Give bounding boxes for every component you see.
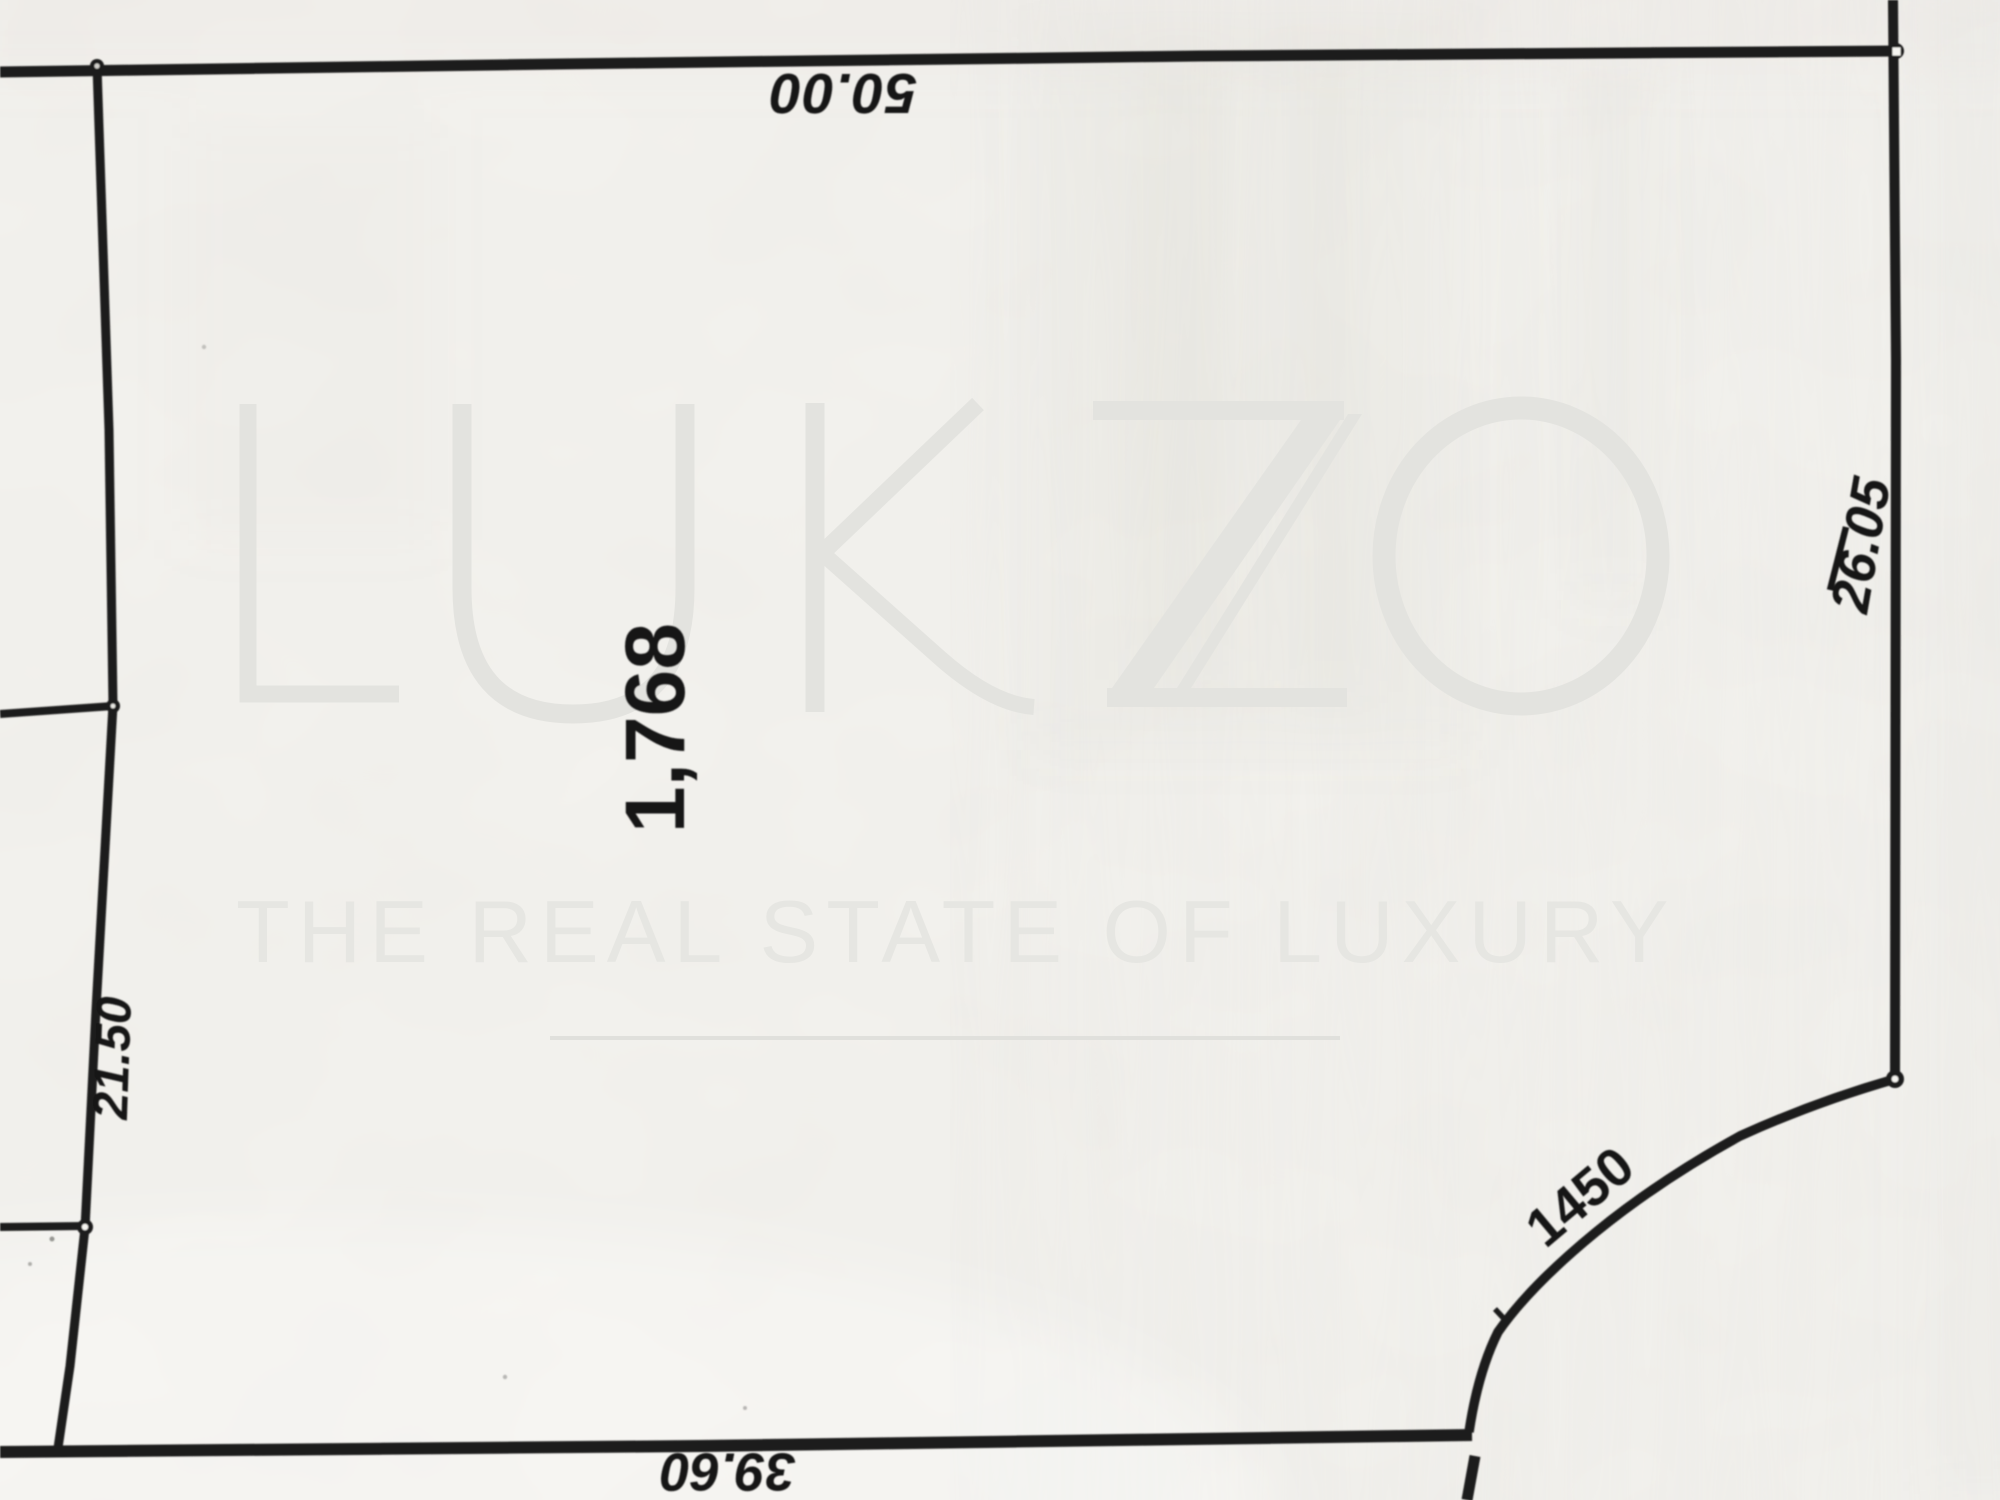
svg-text:21.50: 21.50 [84, 996, 142, 1121]
svg-text:50.00: 50.00 [769, 61, 917, 125]
svg-text:1,768: 1,768 [608, 623, 702, 833]
svg-text:39.60: 39.60 [660, 1442, 795, 1500]
svg-text:THE REAL STATE OF LUXURY: THE REAL STATE OF LUXURY [236, 882, 1677, 981]
